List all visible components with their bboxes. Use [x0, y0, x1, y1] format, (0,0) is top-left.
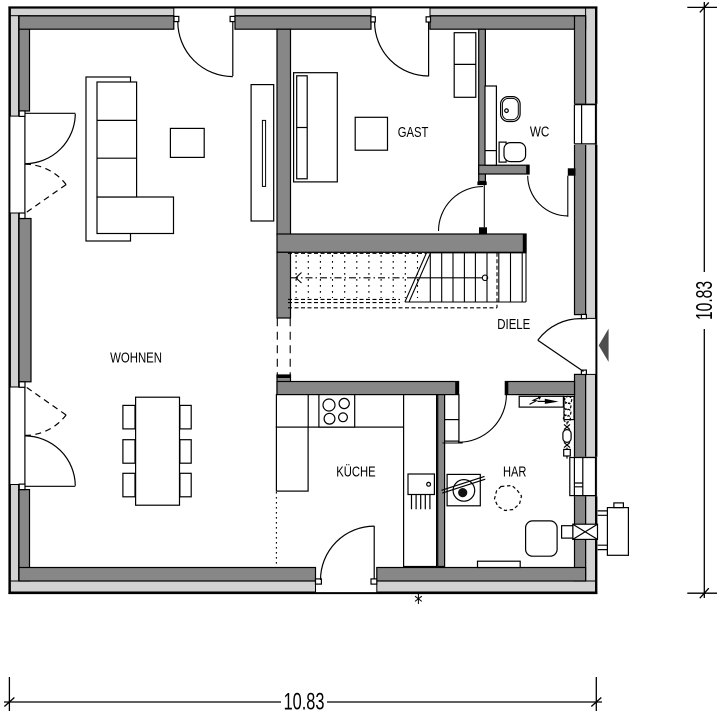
svg-text:DIELE: DIELE — [497, 315, 530, 332]
svg-text:WC: WC — [530, 123, 550, 140]
svg-text:10.83: 10.83 — [692, 281, 717, 320]
svg-text:10.83: 10.83 — [284, 688, 325, 715]
svg-text:KÜCHE: KÜCHE — [336, 463, 375, 480]
svg-text:HAR: HAR — [503, 463, 526, 480]
svg-text:GAST: GAST — [398, 123, 429, 140]
svg-text:WOHNEN: WOHNEN — [110, 349, 162, 366]
